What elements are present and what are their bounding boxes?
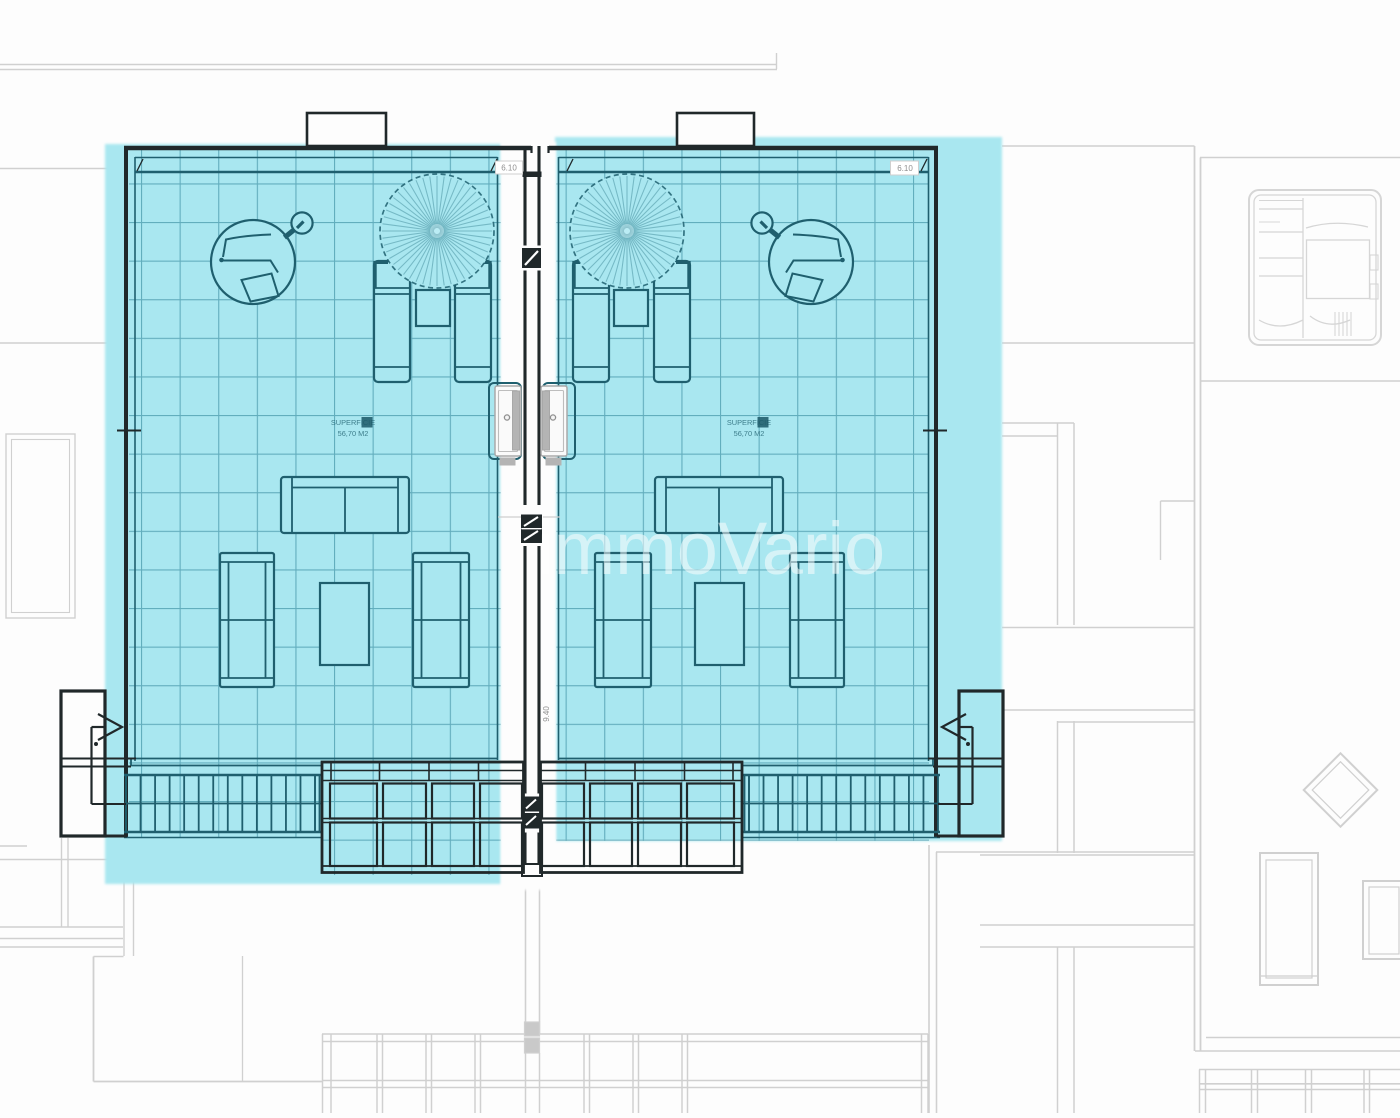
svg-text:6.10: 6.10 [501, 164, 517, 173]
svg-text:6.10: 6.10 [897, 164, 913, 173]
svg-text:9.40: 9.40 [542, 706, 551, 722]
svg-text:56,70 M2: 56,70 M2 [338, 429, 369, 438]
svg-text:56,70 M2: 56,70 M2 [734, 429, 765, 438]
svg-text:immoVario: immoVario [537, 507, 885, 590]
